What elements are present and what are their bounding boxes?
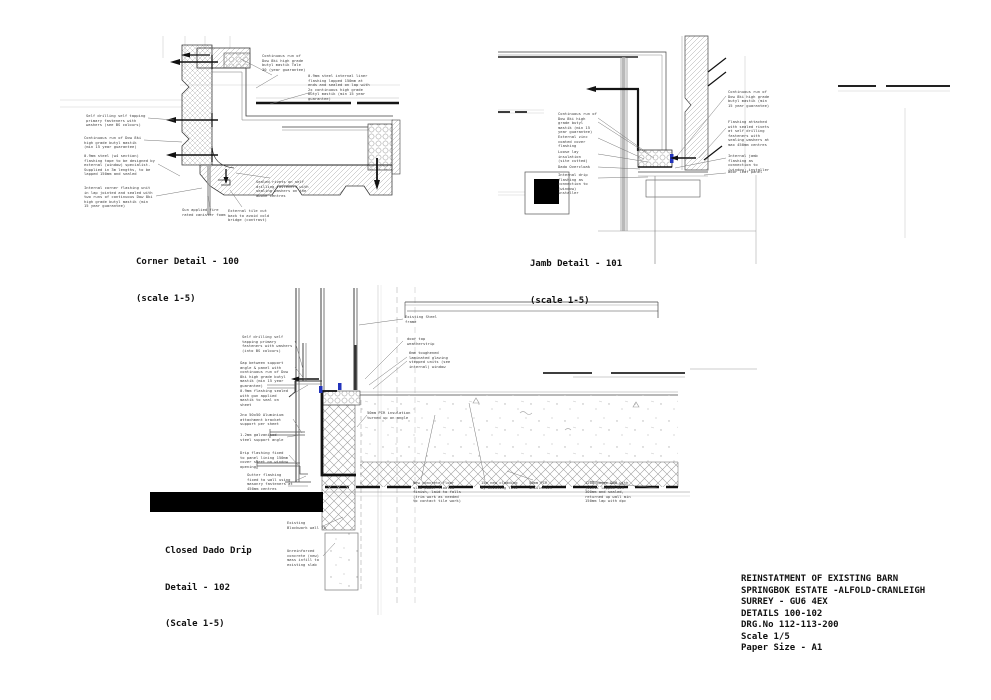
annotation-note: 50mm PIR insulation turned up on angle: [367, 411, 413, 420]
annotation-note: 0.9mm steel (w4 section) flashing tape t…: [84, 154, 156, 177]
masonry-jamb-section: [685, 36, 708, 170]
detail-title-corner: Corner Detail - 100 (scale 1-5): [136, 232, 239, 329]
annotation-note: Continuous run of Dow 8ki high grade but…: [728, 90, 770, 108]
lintel-insulation: [224, 53, 250, 68]
annotation-note: 6mm toughened laminated glazing stepped …: [409, 351, 453, 369]
annotation-note: Existing Blockwork wall 75: [287, 521, 327, 530]
annotation-note: Gun applied fire rated canister foam: [182, 208, 226, 217]
blue-marker: [319, 386, 323, 393]
detail-title-line: Jamb Detail - 101: [530, 258, 622, 270]
annotation-note: New concrete floor slab power floated fi…: [413, 481, 461, 504]
jamb-detail-panel: Continuous run of Dow 8ki high grade but…: [498, 28, 968, 278]
detail-title-dado: Closed Dado Drip Detail - 102 (Scale 1-5…: [165, 521, 252, 655]
annotation-note: 50mm PIR insulation: [529, 481, 569, 490]
annotation-note: Self drilling self tapping primary faste…: [86, 114, 146, 128]
jamb-insulation-block: [368, 124, 392, 170]
corner-detail-panel: Self drilling self tapping primary faste…: [60, 28, 405, 278]
annotation-note: door top weatherstrip: [407, 337, 443, 346]
concrete-pier: [325, 533, 358, 590]
blockwork-wall-section: [322, 405, 355, 530]
drip-insulation: [322, 391, 360, 405]
titleblock-line: Scale 1/5: [741, 632, 925, 644]
column-filled-section: [534, 179, 559, 204]
annotation-note: Self drilling self tapping primary faste…: [242, 335, 294, 353]
annotation-note: Gutter flashing fixed to wall using maso…: [247, 473, 293, 491]
titleblock-line: Paper Size - A1: [741, 643, 925, 655]
annotation-note: 15m new cladding by existing tile: [481, 481, 521, 490]
titleblock-line: SPRINGBOK ESTATE -ALFOLD-CRANLEIGH: [741, 586, 925, 598]
annotation-note: Continuous run of Dow 8ki high grade but…: [84, 136, 142, 150]
detail-title-line: Closed Dado Drip: [165, 545, 252, 557]
detail-title-jamb: Jamb Detail - 101 (scale 1-5): [530, 234, 622, 331]
annotation-note: Internal corner flashing unit in lap joi…: [84, 186, 154, 209]
annotation-note: External zinc coated cover flashing: [558, 135, 596, 149]
detail-scale-line: (scale 1-5): [136, 293, 239, 305]
annotation-note: Existing Steel frame: [405, 315, 447, 324]
detail-title-line: Detail - 102: [165, 582, 252, 594]
annotation-note: External tile cut back to avoid cold bri…: [228, 209, 274, 223]
annotation-note: Drip flashing fixed to panel lining 150m…: [240, 451, 288, 469]
detail-title-line: Corner Detail - 100: [136, 256, 239, 268]
redaction-bar: [150, 492, 323, 512]
titleblock-line: DETAILS 100-102: [741, 609, 925, 621]
annotation-note: 0.9mm steel internal liner flashing lapp…: [308, 74, 374, 101]
annotation-note: Gap between support angle & panel with c…: [240, 361, 295, 388]
annotation-note: 0.9mm flashing sealed with gun applied m…: [240, 389, 288, 407]
titleblock-line: REINSTATMENT OF EXISTING BARN: [741, 574, 925, 586]
blue-marker: [338, 383, 342, 390]
annotation-note: Continuous run of Dow 8ki high grade but…: [558, 112, 598, 135]
annotation-note: Sealed rivets on self drilling fasteners…: [256, 180, 312, 198]
annotation-note: Door leaf panel: [728, 170, 764, 175]
annotation-note: Loose lay insulation (site cutted): [558, 150, 592, 164]
detail-scale-line: (scale 1-5): [530, 295, 622, 307]
titleblock-line: SURREY - GU6 4EX: [741, 597, 925, 609]
concrete-slab: [360, 395, 678, 462]
annotation-note: Unreinforced concrete (new) mass infill …: [287, 549, 329, 567]
drawing-sheet: Self drilling self tapping primary faste…: [0, 0, 991, 700]
titleblock-line: DRG.No 112-113-200: [741, 620, 925, 632]
annotation-note: 1200 gauge DPM with joints lapped min 30…: [585, 481, 631, 504]
annotation-note: 1.2mm galvanised steel support angle: [240, 433, 286, 442]
dado-detail-panel: Self drilling self tapping primary faste…: [145, 285, 785, 615]
detail-scale-line: (Scale 1-5): [165, 618, 252, 630]
mullion-bar: [622, 57, 626, 231]
annotation-note: Flashing attached with sealed rivets at …: [728, 120, 772, 147]
annotation-note: Internal drip flashing as connection to …: [558, 173, 598, 196]
title-block: REINSTATMENT OF EXISTING BARN SPRINGBOK …: [741, 574, 925, 655]
annotation-note: 2no 50x50 Aluminium attachment bracket s…: [240, 413, 290, 427]
annotation-note: Continuous run of Dow 8ki high grade but…: [262, 54, 306, 72]
annotation-note: Dado Overcloak: [558, 165, 592, 170]
